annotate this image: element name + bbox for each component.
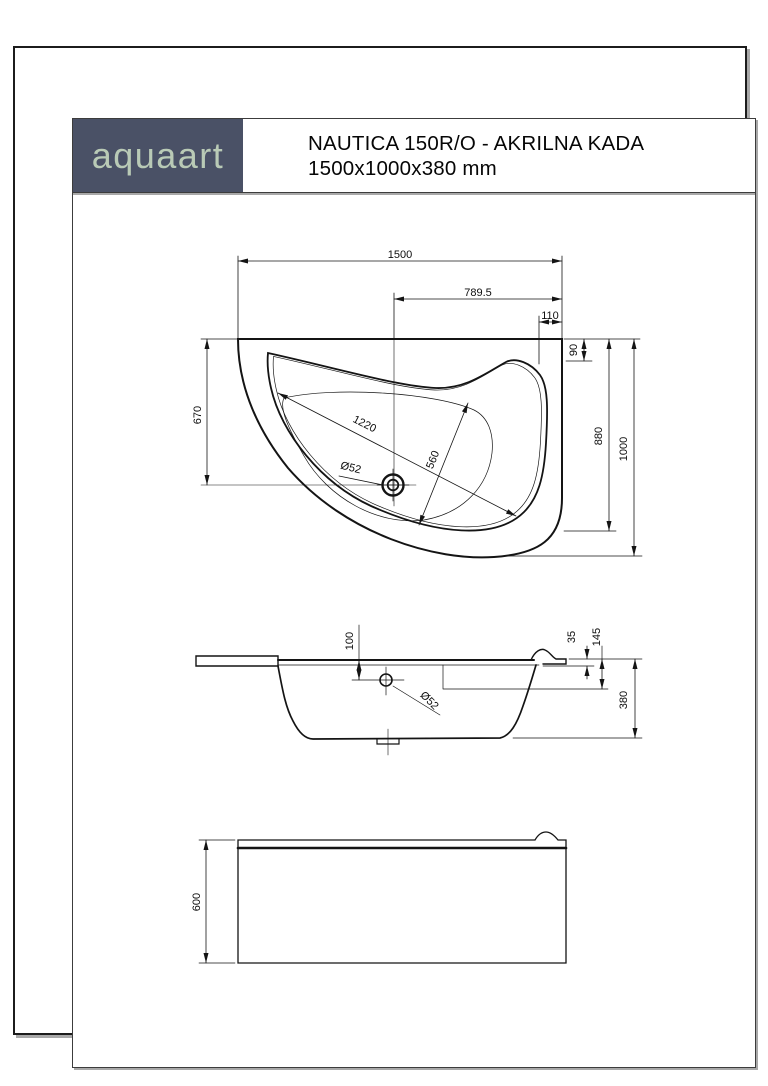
dim-drain-offset: 789.5 — [464, 287, 492, 299]
headrest-profile — [531, 649, 566, 664]
technical-drawing: 1500 789.5 110 90 670 880 1000 1220 560 … — [73, 192, 755, 1067]
brand-logo: aquaart — [92, 138, 225, 174]
drawing-frame: aquaart NAUTICA 150R/O - AKRILNA KADA 15… — [72, 118, 756, 1068]
dim-rim-thickness: 35 — [566, 631, 578, 643]
dim-side-depth: 880 — [593, 427, 605, 445]
side-view: 100 35 145 380 Ø52 — [196, 625, 642, 755]
rim-lip — [196, 656, 278, 666]
logo-box: aquaart — [73, 119, 243, 192]
dim-basin-width: 560 — [424, 449, 442, 471]
dim-drain-below-rim: 100 — [344, 632, 356, 650]
dim-drain-dia-top: Ø52 — [339, 460, 362, 477]
front-view: 600 — [191, 832, 566, 963]
tub-top-outline — [238, 339, 562, 557]
tub-rim-inner — [268, 353, 547, 531]
page-border: aquaart NAUTICA 150R/O - AKRILNA KADA 15… — [13, 46, 747, 1035]
top-view: 1500 789.5 110 90 670 880 1000 1220 560 … — [192, 249, 642, 557]
spec-sheet-page: { "header": { "logo_text": "aquaart", "t… — [0, 0, 768, 1086]
dim-drain-from-front: 670 — [192, 406, 204, 424]
product-dimensions: 1500x1000x380 mm — [308, 156, 755, 181]
dim-drain-dia-side: Ø52 — [418, 689, 441, 712]
dim-overall-depth: 1000 — [618, 437, 630, 461]
dim-headrest-drop: 145 — [591, 628, 603, 646]
front-panel-outline — [238, 832, 566, 963]
tub-rim-inner-thin — [273, 356, 541, 526]
dim-overall-width: 1500 — [388, 249, 412, 261]
dim-headrest-inset: 110 — [541, 310, 559, 322]
tub-side-profile — [278, 665, 536, 739]
header: aquaart NAUTICA 150R/O - AKRILNA KADA 15… — [73, 119, 755, 193]
drain-side — [352, 667, 404, 695]
dim-headrest-depth: 90 — [568, 344, 580, 356]
dim-basin-diagonal: 1220 — [351, 413, 378, 435]
product-title: NAUTICA 150R/O - AKRILNA KADA — [308, 131, 755, 156]
dim-panel-height: 600 — [191, 893, 203, 911]
dim-overall-height: 380 — [618, 691, 630, 709]
title-block: NAUTICA 150R/O - AKRILNA KADA 1500x1000x… — [243, 119, 755, 192]
